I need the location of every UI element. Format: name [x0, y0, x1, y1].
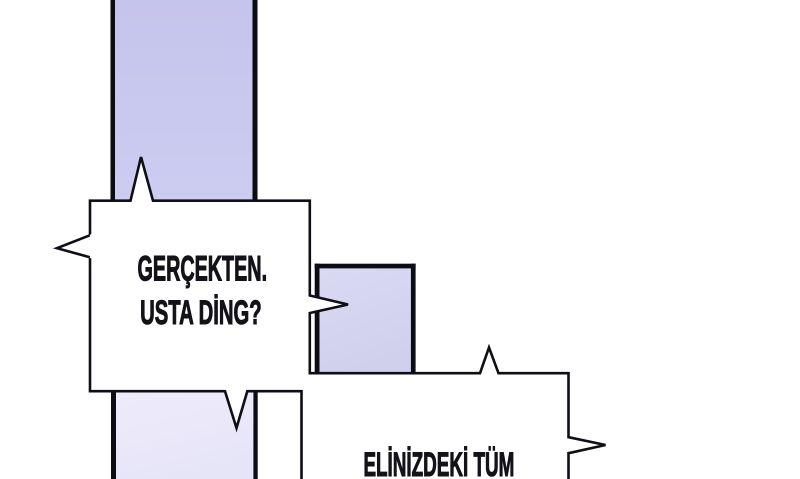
- svg-text:GERÇEKTEN.: GERÇEKTEN.: [138, 250, 268, 289]
- svg-text:USTA DİNG?: USTA DİNG?: [140, 294, 262, 333]
- svg-text:ELİNİZDEKİ TÜM: ELİNİZDEKİ TÜM: [363, 445, 514, 479]
